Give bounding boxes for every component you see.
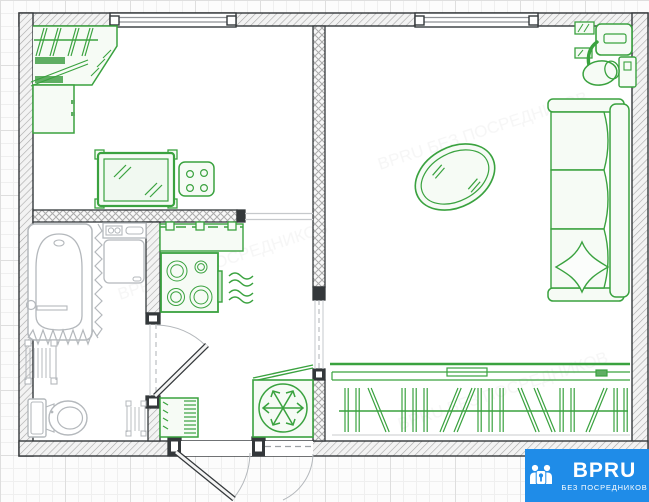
- stove-four-burners: [161, 253, 222, 312]
- brand-watermark: BPRU БЕЗ ПОСРЕДНИКОВ: [525, 449, 649, 502]
- four-burner-hob: [179, 162, 214, 196]
- kitchen-counter: [160, 222, 243, 251]
- toilet: [28, 399, 87, 437]
- washing-machine: [103, 223, 146, 283]
- sofa: [548, 99, 629, 301]
- people-key-icon: [526, 461, 556, 491]
- desk-with-office-chair: [575, 22, 636, 87]
- mirror-table: [95, 150, 177, 208]
- bathtub: [27, 224, 93, 340]
- bedroom-cabinet: [33, 85, 75, 133]
- entrance-door: [176, 452, 250, 499]
- brand-name: BPRU: [573, 460, 637, 481]
- brand-tagline: БЕЗ ПОСРЕДНИКОВ: [561, 484, 647, 492]
- window-top-left: [110, 13, 236, 27]
- floor-plan-canvas: BPRU БЕЗ ПОСРЕДНИКОВ BPRU БЕЗ ПОСРЕДНИКО…: [0, 0, 649, 502]
- window-top-right: [415, 13, 538, 27]
- shoe-cabinet: [160, 398, 198, 437]
